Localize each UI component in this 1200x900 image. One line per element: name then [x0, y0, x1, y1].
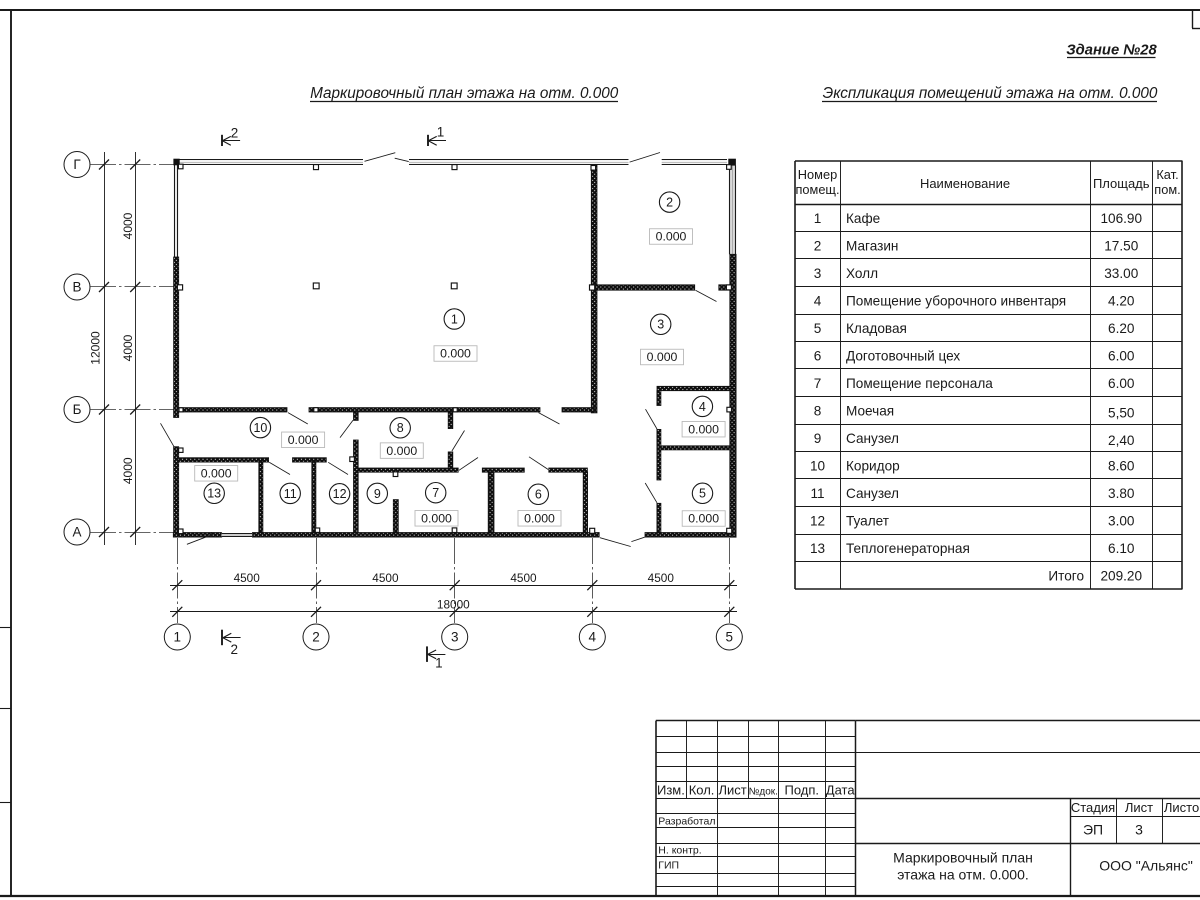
svg-text:2,40: 2,40	[1108, 433, 1135, 448]
svg-text:0.000: 0.000	[647, 350, 678, 364]
svg-text:7: 7	[814, 376, 822, 391]
svg-text:Туалет: Туалет	[846, 513, 889, 528]
svg-text:3: 3	[657, 318, 664, 332]
svg-text:Лист: Лист	[719, 783, 747, 798]
svg-text:пом.: пом.	[1154, 182, 1180, 197]
svg-text:4000: 4000	[121, 457, 135, 484]
svg-text:4000: 4000	[121, 334, 135, 361]
svg-text:5: 5	[814, 321, 822, 336]
svg-text:13: 13	[810, 541, 825, 556]
svg-text:6.00: 6.00	[1108, 348, 1135, 363]
svg-text:0.000: 0.000	[440, 347, 471, 361]
svg-text:6.00: 6.00	[1108, 376, 1135, 391]
svg-text:4: 4	[699, 400, 706, 414]
svg-text:106.90: 106.90	[1100, 211, 1142, 226]
svg-text:11: 11	[810, 486, 824, 501]
svg-text:Санузел: Санузел	[846, 431, 899, 446]
svg-text:Здание №28: Здание №28	[1066, 42, 1157, 58]
svg-text:9: 9	[374, 487, 381, 501]
svg-text:8: 8	[397, 421, 404, 435]
svg-text:11: 11	[284, 487, 297, 501]
svg-text:Теплогенераторная: Теплогенераторная	[846, 541, 970, 556]
svg-text:Номер: Номер	[798, 167, 837, 182]
svg-text:8.60: 8.60	[1108, 458, 1135, 473]
svg-text:Разработал: Разработал	[658, 816, 715, 828]
svg-text:ГИП: ГИП	[658, 860, 679, 872]
svg-text:0.000: 0.000	[421, 512, 452, 526]
svg-text:6.20: 6.20	[1108, 321, 1135, 336]
svg-text:6: 6	[814, 348, 822, 363]
svg-text:Кол.: Кол.	[689, 783, 715, 798]
svg-text:Листов: Листов	[1164, 800, 1200, 815]
svg-text:12000: 12000	[89, 331, 103, 365]
svg-text:Помещение уборочного инвентаря: Помещение уборочного инвентаря	[846, 293, 1066, 308]
svg-text:3.80: 3.80	[1108, 486, 1135, 501]
svg-text:Санузел: Санузел	[846, 486, 899, 501]
svg-text:Подп.: Подп.	[784, 783, 819, 798]
svg-text:4.20: 4.20	[1108, 293, 1135, 308]
svg-text:3.00: 3.00	[1108, 513, 1135, 528]
svg-text:этажа на отм. 0.000.: этажа на отм. 0.000.	[897, 867, 1029, 883]
svg-text:4500: 4500	[510, 571, 537, 585]
svg-text:4500: 4500	[372, 571, 399, 585]
svg-text:0.000: 0.000	[688, 422, 719, 436]
svg-text:Н. контр.: Н. контр.	[658, 845, 701, 857]
svg-text:7: 7	[432, 486, 439, 500]
svg-text:Дата: Дата	[826, 783, 856, 798]
svg-text:5: 5	[699, 487, 706, 501]
svg-text:10: 10	[810, 458, 826, 473]
svg-text:Маркировочный план этажа на от: Маркировочный план этажа на отм. 0.000	[310, 85, 619, 102]
svg-text:Коридор: Коридор	[846, 458, 900, 473]
svg-text:12: 12	[810, 513, 825, 528]
svg-text:Наименование: Наименование	[920, 176, 1010, 191]
svg-text:Кладовая: Кладовая	[846, 321, 907, 336]
svg-text:12: 12	[333, 487, 347, 501]
svg-text:4: 4	[814, 293, 822, 308]
svg-text:8: 8	[814, 403, 822, 418]
svg-text:3: 3	[814, 266, 822, 281]
svg-text:9: 9	[814, 431, 822, 446]
svg-text:18000: 18000	[437, 597, 470, 611]
svg-text:Кат.: Кат.	[1156, 167, 1178, 182]
svg-text:0.000: 0.000	[201, 467, 232, 481]
svg-text:0.000: 0.000	[524, 512, 555, 526]
svg-text:Изм.: Изм.	[657, 783, 685, 798]
svg-text:4500: 4500	[648, 571, 675, 585]
svg-text:А: А	[72, 525, 81, 540]
svg-text:17.50: 17.50	[1104, 238, 1138, 253]
svg-text:10: 10	[253, 421, 267, 435]
svg-text:6: 6	[535, 488, 542, 502]
svg-text:2: 2	[312, 630, 320, 645]
svg-text:Доготовочный цех: Доготовочный цех	[846, 348, 960, 363]
svg-text:Г: Г	[73, 157, 81, 172]
svg-text:ЭП: ЭП	[1083, 822, 1103, 838]
svg-text:1: 1	[174, 630, 182, 645]
svg-text:Экспликация помещений этажа на: Экспликация помещений этажа на отм. 0.00…	[823, 85, 1158, 102]
svg-text:Маркировочный план: Маркировочный план	[893, 850, 1033, 866]
svg-text:1: 1	[437, 125, 445, 140]
svg-text:1: 1	[435, 656, 443, 671]
svg-text:0.000: 0.000	[688, 512, 719, 526]
svg-text:Моечая: Моечая	[846, 403, 894, 418]
svg-text:5,50: 5,50	[1108, 405, 1135, 420]
svg-text:4: 4	[589, 630, 597, 645]
svg-text:ООО "Альянс": ООО "Альянс"	[1099, 858, 1193, 874]
svg-text:209.20: 209.20	[1100, 568, 1142, 583]
svg-text:помещ.: помещ.	[795, 182, 839, 197]
svg-text:0.000: 0.000	[656, 230, 687, 244]
svg-text:В: В	[72, 280, 81, 295]
svg-text:3: 3	[1135, 822, 1143, 838]
svg-text:1: 1	[814, 211, 822, 226]
svg-text:Лист: Лист	[1125, 800, 1153, 815]
svg-text:6.10: 6.10	[1108, 541, 1135, 556]
svg-text:1: 1	[451, 312, 458, 326]
svg-text:Помещение персонала: Помещение персонала	[846, 376, 993, 391]
svg-text:Итого: Итого	[1048, 568, 1084, 583]
svg-text:Магазин: Магазин	[846, 238, 898, 253]
svg-text:5: 5	[726, 630, 734, 645]
svg-text:2: 2	[814, 238, 822, 253]
svg-text:0.000: 0.000	[386, 444, 417, 458]
svg-text:Стадия: Стадия	[1071, 800, 1115, 815]
svg-text:33.00: 33.00	[1104, 266, 1138, 281]
svg-text:3: 3	[451, 630, 459, 645]
svg-text:4000: 4000	[121, 212, 135, 239]
svg-text:Площадь: Площадь	[1093, 176, 1150, 191]
svg-text:2: 2	[231, 126, 239, 141]
svg-text:13: 13	[207, 487, 221, 501]
svg-text:№док.: №док.	[749, 787, 778, 798]
svg-text:2: 2	[230, 642, 238, 657]
svg-text:Кафе: Кафе	[846, 211, 880, 226]
svg-text:2: 2	[666, 196, 673, 210]
svg-text:Б: Б	[73, 402, 82, 417]
svg-text:0.000: 0.000	[288, 433, 319, 447]
svg-text:Холл: Холл	[846, 266, 878, 281]
svg-text:4500: 4500	[234, 571, 261, 585]
